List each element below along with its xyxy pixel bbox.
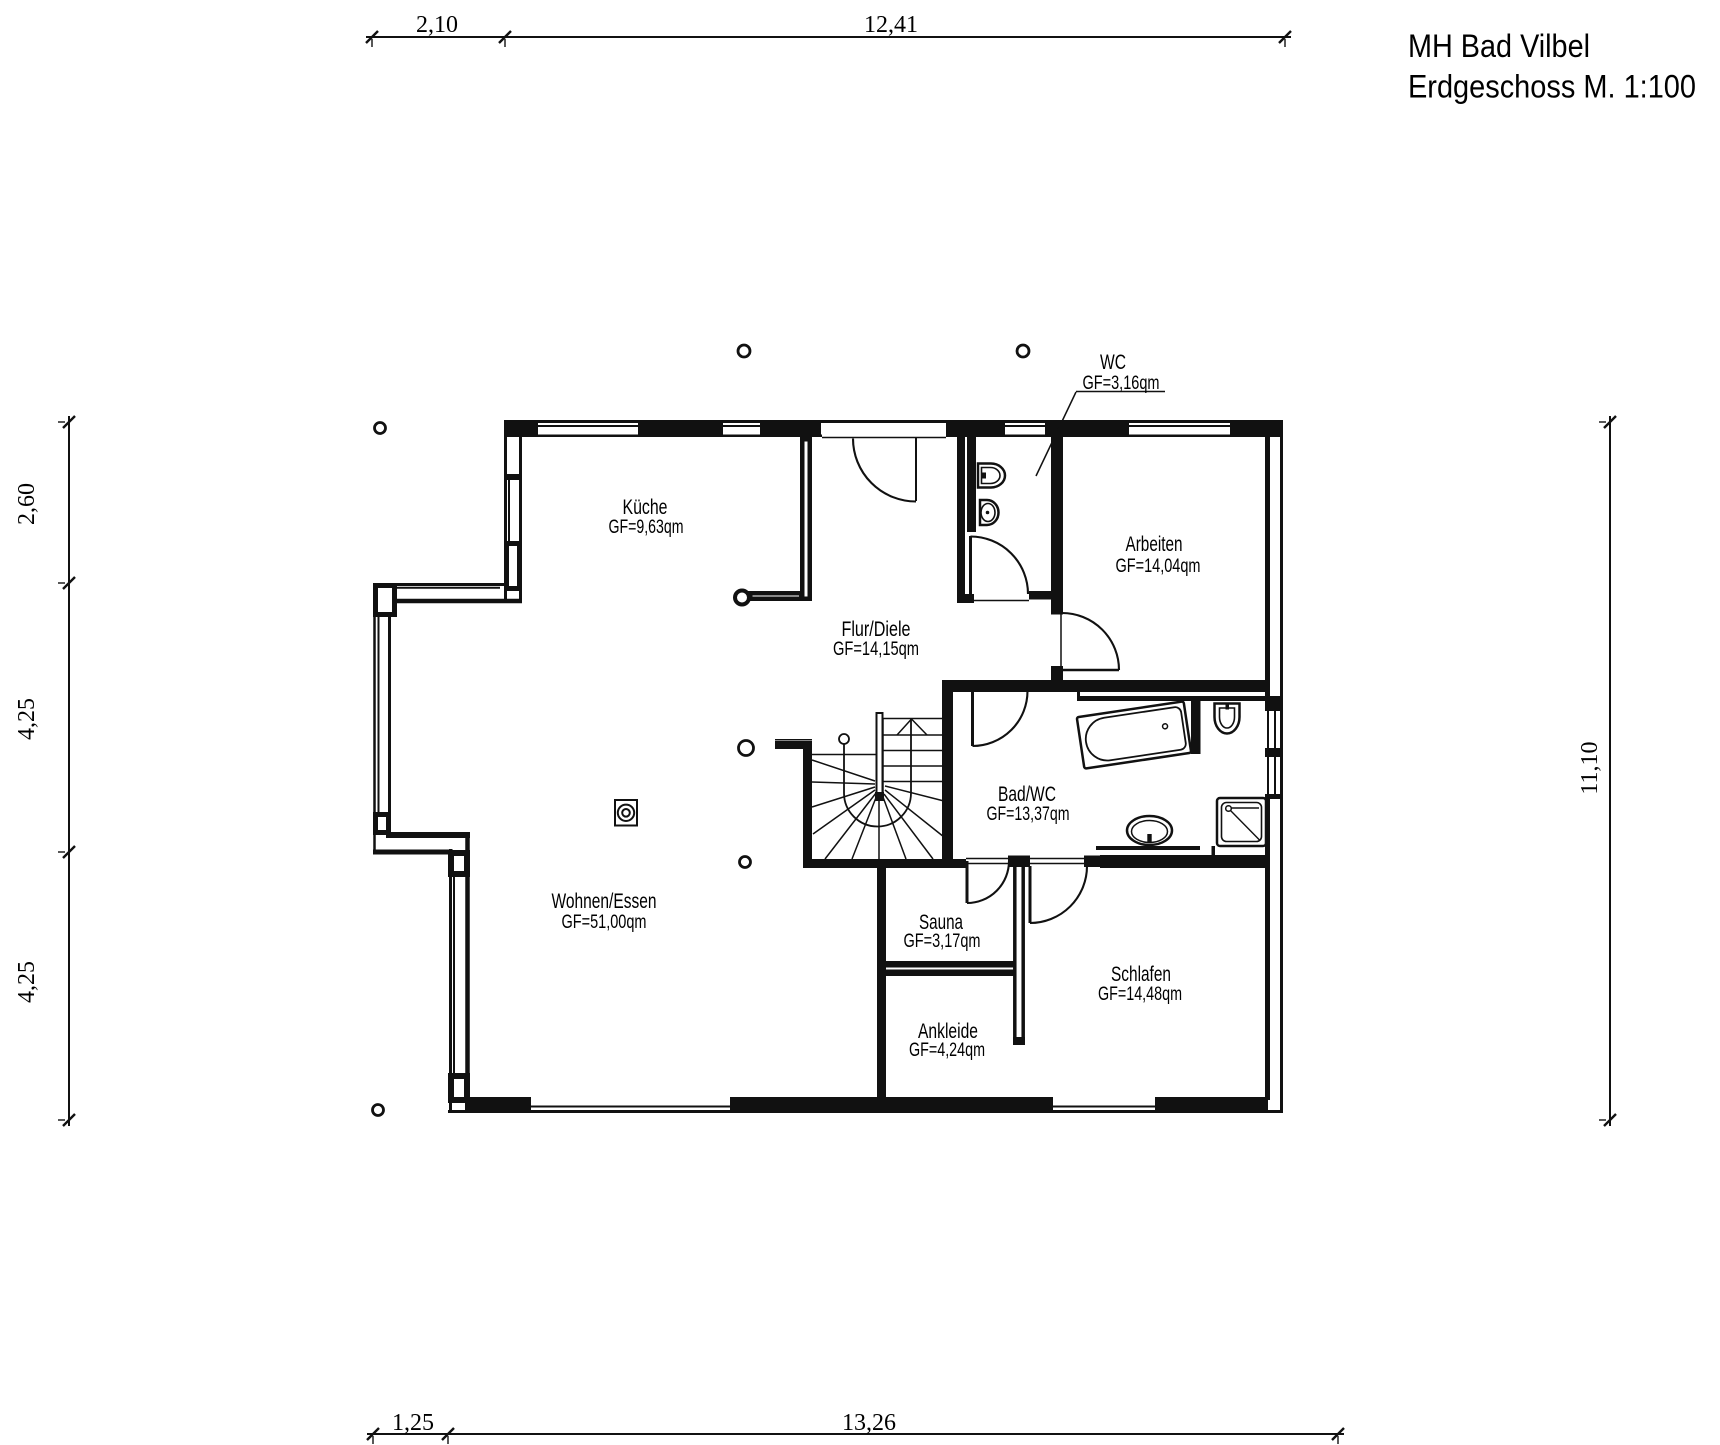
svg-text:GF=4,24qm: GF=4,24qm xyxy=(909,1039,985,1061)
svg-text:GF=14,04qm: GF=14,04qm xyxy=(1116,555,1201,577)
svg-text:GF=3,16qm: GF=3,16qm xyxy=(1083,372,1160,394)
svg-text:11,10: 11,10 xyxy=(1577,741,1603,794)
svg-text:GF=51,00qm: GF=51,00qm xyxy=(562,911,647,933)
svg-text:4,25: 4,25 xyxy=(14,961,40,1003)
svg-text:Wohnen/Essen: Wohnen/Essen xyxy=(552,890,657,913)
svg-text:13,26: 13,26 xyxy=(842,1410,896,1436)
svg-text:2,60: 2,60 xyxy=(14,483,40,525)
svg-text:WC: WC xyxy=(1100,351,1126,374)
svg-text:GF=9,63qm: GF=9,63qm xyxy=(609,516,684,538)
svg-text:GF=13,37qm: GF=13,37qm xyxy=(987,803,1070,825)
svg-text:Erdgeschoss M. 1:100: Erdgeschoss M. 1:100 xyxy=(1408,69,1696,105)
svg-text:GF=14,15qm: GF=14,15qm xyxy=(833,638,919,660)
svg-text:4,25: 4,25 xyxy=(14,698,40,740)
svg-text:Arbeiten: Arbeiten xyxy=(1126,533,1183,556)
svg-text:1,25: 1,25 xyxy=(392,1410,434,1436)
svg-text:GF=14,48qm: GF=14,48qm xyxy=(1098,983,1182,1005)
svg-text:12,41: 12,41 xyxy=(864,12,918,38)
svg-text:2,10: 2,10 xyxy=(416,12,458,38)
svg-text:GF=3,17qm: GF=3,17qm xyxy=(904,930,981,952)
svg-text:MH Bad Vilbel: MH Bad Vilbel xyxy=(1408,28,1590,64)
